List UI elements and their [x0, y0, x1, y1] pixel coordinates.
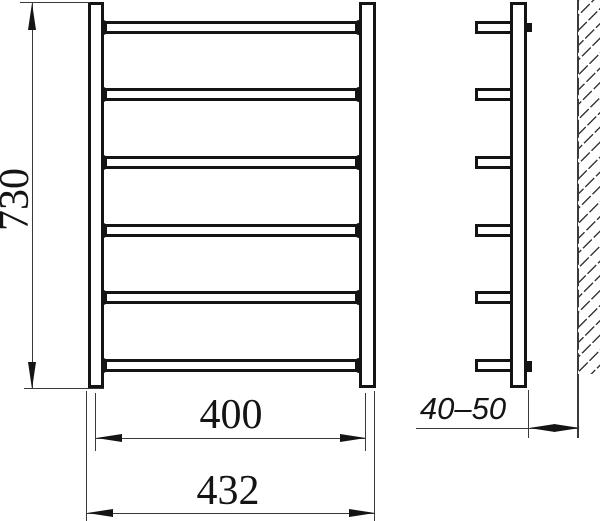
towel-rail-bar	[101, 359, 362, 372]
overall-width-dimension-label: 432	[178, 470, 278, 512]
height-dimension-label: 730	[0, 169, 36, 231]
side-rung	[475, 291, 513, 304]
wall-bracket-stub	[527, 23, 532, 32]
wall-bracket-stub	[527, 361, 532, 372]
drawing-canvas: 730 400 432 40–50	[0, 0, 600, 521]
towel-rail-bar	[101, 224, 362, 237]
height-arrow-up	[28, 3, 36, 30]
wall-offset-arrow-left	[529, 424, 555, 432]
overall-width-ext-line-left	[86, 391, 87, 521]
front-right-post	[359, 2, 376, 388]
side-post	[510, 2, 527, 388]
wall-offset-dimension-label: 40–50	[413, 392, 513, 426]
inner-width-dimension-label: 400	[181, 394, 281, 436]
side-rung	[475, 88, 513, 101]
inner-width-arrow-right	[340, 434, 366, 442]
inner-width-ext-line-left	[95, 393, 96, 451]
towel-rail-bar	[101, 291, 362, 304]
wall-hatch	[578, 0, 600, 374]
height-arrow-down	[28, 362, 36, 389]
front-left-post	[88, 2, 104, 388]
inner-width-dimension-line	[96, 438, 366, 439]
side-rung	[475, 359, 513, 372]
towel-rail-bar	[101, 156, 362, 169]
side-rung	[475, 156, 513, 169]
side-rung	[475, 21, 513, 34]
wall-offset-arrow-right	[554, 424, 580, 432]
overall-width-arrow-right	[349, 509, 375, 517]
inner-width-ext-line-right	[365, 393, 366, 451]
inner-width-arrow-left	[96, 434, 122, 442]
height-ext-line-bottom	[24, 388, 104, 389]
side-rung	[475, 224, 513, 237]
towel-rail-bar	[101, 21, 362, 34]
overall-width-arrow-left	[87, 509, 113, 517]
towel-rail-bar	[101, 88, 362, 101]
overall-width-ext-line-right	[374, 391, 375, 521]
